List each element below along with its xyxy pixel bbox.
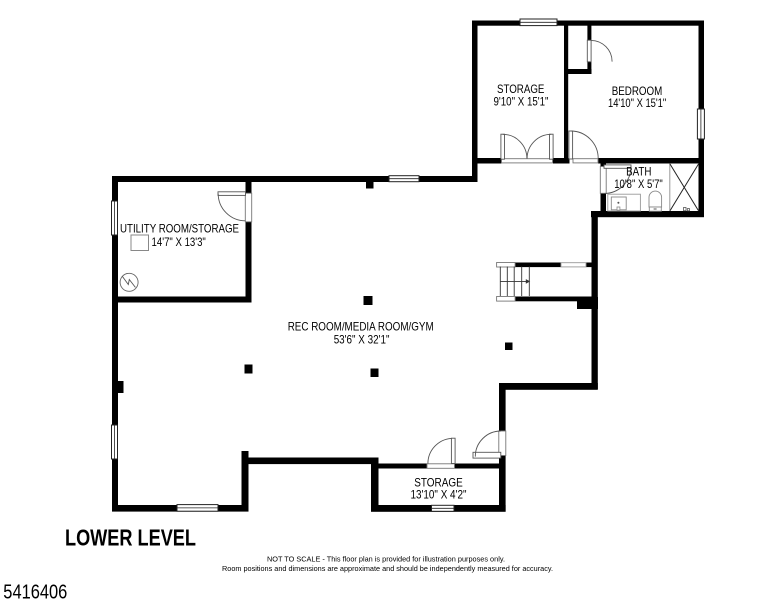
svg-text:BATH: BATH (626, 166, 651, 179)
svg-text:REC ROOM/MEDIA ROOM/GYM: REC ROOM/MEDIA ROOM/GYM (288, 321, 434, 334)
svg-text:BEDROOM: BEDROOM (612, 85, 663, 98)
svg-text:14'7" X 13'3": 14'7" X 13'3" (152, 236, 206, 249)
svg-text:Room positions and dimensions: Room positions and dimensions are approx… (222, 564, 553, 573)
svg-text:10'8" X 5'7": 10'8" X 5'7" (614, 178, 663, 191)
svg-text:14'10" X 15'1": 14'10" X 15'1" (608, 97, 666, 110)
svg-text:LOWER LEVEL: LOWER LEVEL (65, 524, 196, 550)
svg-text:UTILITY ROOM/STORAGE: UTILITY ROOM/STORAGE (120, 222, 239, 235)
svg-text:NOT TO SCALE - This floor plan: NOT TO SCALE - This floor plan is provid… (267, 554, 505, 563)
svg-text:13'10" X 4'2": 13'10" X 4'2" (411, 488, 467, 501)
svg-text:9'10" X 15'1": 9'10" X 15'1" (494, 95, 549, 108)
svg-text:5416406: 5416406 (3, 580, 67, 600)
svg-text:53'6" X 32'1": 53'6" X 32'1" (334, 333, 390, 346)
svg-text:STORAGE: STORAGE (497, 83, 545, 96)
